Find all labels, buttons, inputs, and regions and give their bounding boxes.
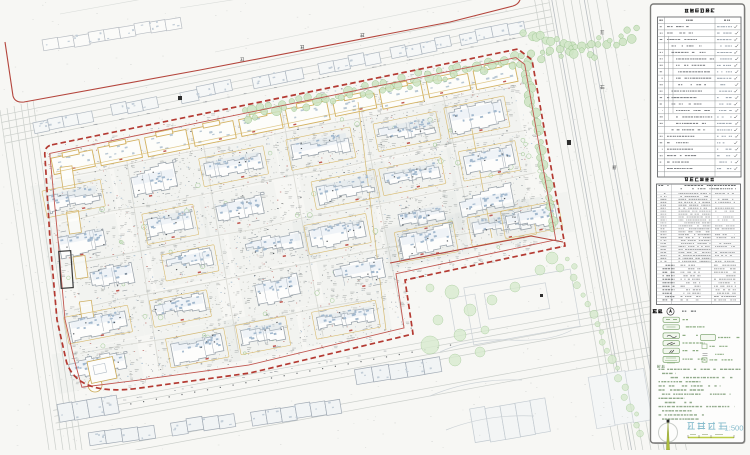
svg-text:1:500: 1:500 bbox=[725, 424, 744, 433]
